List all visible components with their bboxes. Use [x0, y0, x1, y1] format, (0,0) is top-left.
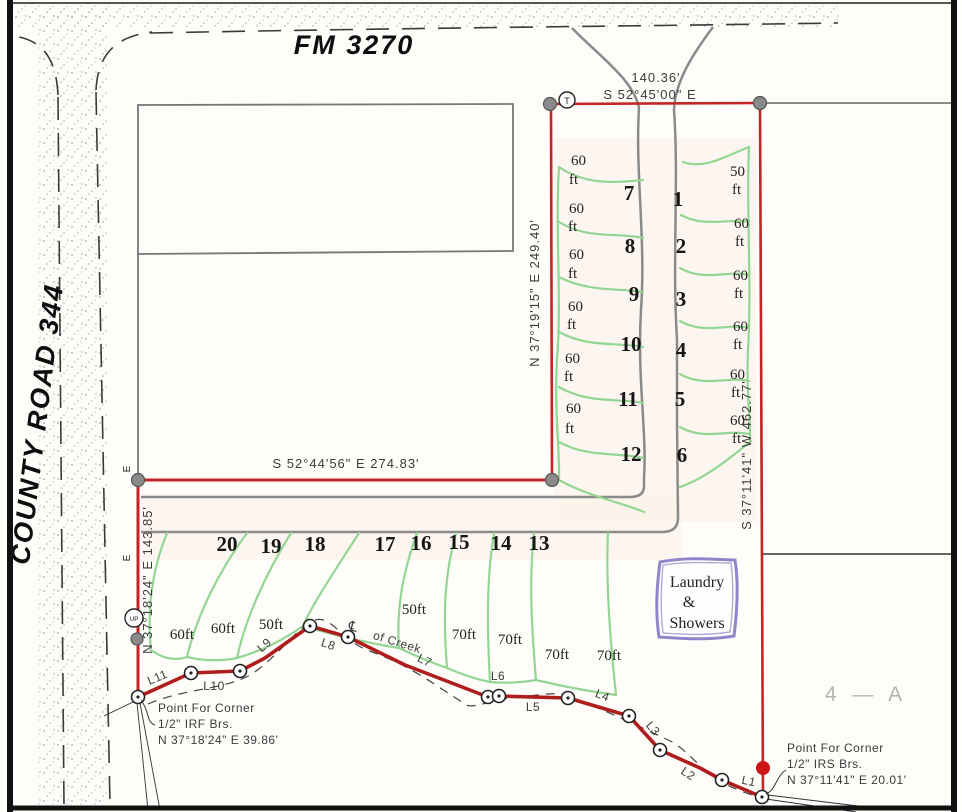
creek-vertex: [234, 665, 247, 678]
laundry-label-line3: Showers: [669, 615, 724, 632]
tint-upper-lots: [554, 138, 756, 522]
lot-width: 60: [569, 201, 584, 217]
sw-note-line2: 1/2" IRF Brs.: [158, 717, 233, 731]
lot-width: 70ft: [597, 648, 622, 664]
se-note-line2: 1/2" IRS Brs.: [787, 757, 862, 771]
corner-dot-mid-west: [132, 474, 145, 487]
creek-vertex: [562, 692, 575, 705]
lot-width: 60ft: [170, 627, 195, 643]
lot-width-unit: ft: [567, 317, 577, 333]
lower-west-line-bearing: N 37°18'24" E 143.85': [140, 506, 155, 654]
lot-number: 4: [676, 338, 687, 362]
sw-note-line1: Point For Corner: [158, 701, 255, 715]
mid-line-bearing: S 52°44'56" E 274.83': [272, 456, 419, 471]
lot15-south-line: [447, 668, 490, 682]
creek-vertex: [654, 744, 667, 757]
lot-number: 13: [529, 531, 550, 555]
lot-width-unit: ft: [733, 337, 743, 353]
creek-vertex: [493, 690, 506, 703]
north-line-distance: 140.36': [631, 70, 680, 85]
lot-number: 17: [375, 532, 396, 556]
lot-width-unit: ft: [564, 369, 574, 385]
lot-width-unit: ft: [731, 385, 741, 401]
laundry-label-line2: &: [683, 594, 696, 611]
corner-dot-north-east: [754, 97, 767, 110]
centerline-symbol: ℄: [346, 618, 360, 636]
creek-segment-label: L1: [740, 773, 757, 790]
lot-width: 50ft: [259, 617, 284, 633]
east-line-bearing: S 37°11'41" W 462.77': [739, 380, 754, 530]
lot-number: 11: [618, 387, 638, 411]
boundary-north: [551, 103, 760, 104]
lot-width: 70ft: [452, 627, 477, 643]
lot-width: 60: [733, 268, 748, 284]
adjoining-parcel-lines: [138, 103, 952, 554]
lot-width-unit: ft: [734, 286, 744, 302]
lot-width-unit: ft: [568, 266, 578, 282]
lot-number: 3: [676, 287, 687, 311]
corner-dot-mid-east: [546, 474, 559, 487]
lot-number: 14: [491, 531, 513, 555]
corner-dot-north-west: [544, 98, 557, 111]
electric-line-marker-upper: E: [122, 465, 133, 472]
se-note-line1: Point For Corner: [787, 741, 884, 755]
fm3270-pavement-stipple: [13, 4, 840, 29]
north-line-bearing: S 52°45'00" E: [603, 87, 696, 102]
creek-vertex: [304, 620, 317, 633]
survey-plat-page: T UP E E FM 3270 COUNTY ROAD 344 140.36'…: [0, 0, 962, 812]
sw-note-line3: N 37°18'24" E 39.86': [158, 733, 278, 747]
lot-width: 60: [571, 153, 586, 169]
plat-drawing: T UP E E FM 3270 COUNTY ROAD 344 140.36'…: [0, 0, 962, 812]
lot-number: 12: [621, 442, 642, 466]
lot19-south-line: [187, 657, 237, 660]
lot-number: 6: [677, 443, 688, 467]
up-marker-label: UP: [129, 616, 138, 623]
lot-width: 60: [730, 367, 745, 383]
upper-west-line-bearing: N 37°19'15" E 249.40': [527, 219, 542, 367]
lot-width: 50ft: [402, 602, 427, 618]
creek-vertex: [716, 774, 729, 787]
lot-number: 15: [449, 530, 470, 554]
boundary-east: [760, 103, 763, 797]
creek-segment-label: L8: [319, 635, 337, 653]
lot-number: 2: [676, 234, 687, 258]
lot-width-unit: ft: [732, 431, 742, 447]
lot-width: 60: [569, 247, 584, 263]
lot-number: 18: [305, 532, 326, 556]
lot-width: 60ft: [211, 621, 236, 637]
lot-width: 60: [565, 351, 580, 367]
lot-width: 70ft: [498, 632, 523, 648]
sw-tie-line-1: [137, 703, 148, 810]
corner-note-se: Point For Corner 1/2" IRS Brs. N 37°11'4…: [766, 741, 907, 794]
lot-width: 70ft: [545, 647, 570, 663]
creek-vertex: [623, 710, 636, 723]
lot-number: 20: [217, 532, 238, 556]
laundry-showers-box: Laundry & Showers: [657, 559, 737, 639]
set-point-red-dot: [756, 761, 770, 775]
laundry-label-line1: Laundry: [670, 574, 724, 591]
lot-width-unit: ft: [565, 421, 575, 437]
electric-line-marker-lower: E: [122, 554, 133, 561]
lot-number: 5: [675, 387, 686, 411]
lot-number: 8: [625, 234, 636, 258]
lot-width-unit: ft: [568, 219, 578, 235]
creek-segment-label: L6: [491, 669, 505, 683]
lot-width: 60: [734, 216, 749, 232]
lot-number: 9: [629, 282, 640, 306]
se-note-line3: N 37°11'41" E 20.01': [787, 773, 907, 787]
se-note-leader-line: [766, 770, 786, 794]
lot-number: 1: [673, 187, 684, 211]
lot-width-unit: ft: [569, 172, 579, 188]
lot-width: 60: [568, 299, 583, 315]
lot-width-unit: ft: [732, 182, 742, 198]
lot-width: 60: [733, 319, 748, 335]
lot-number: 10: [621, 332, 642, 356]
se-tie-line-2: [768, 795, 858, 806]
t-marker-label: T: [564, 96, 570, 106]
northwest-parcel-outline: [138, 104, 513, 254]
lot-number: 19: [261, 534, 282, 558]
creek-segment-label: L5: [526, 700, 540, 714]
creek-segment-label: L10: [203, 679, 225, 693]
corner-note-sw: Point For Corner 1/2" IRF Brs. N 37°18'2…: [141, 700, 278, 747]
lot-width-unit: ft: [735, 234, 745, 250]
road-name-fm3270: FM 3270: [294, 30, 415, 60]
lot20-south-line: [151, 650, 187, 659]
lot-width: 60: [730, 413, 745, 429]
creek-segment-label: L4: [593, 686, 612, 704]
creek-vertex: [756, 791, 769, 804]
lot-number: 16: [411, 531, 432, 555]
telephone-pedestal-marker: T: [559, 92, 575, 108]
lot-width: 50: [730, 164, 745, 180]
tract-label-4a: 4 — A: [825, 683, 907, 706]
lot-number: 7: [624, 181, 635, 205]
lot-width: 60: [566, 401, 581, 417]
boundary-upper-west: [551, 104, 552, 480]
sw-tie-line-2: [140, 703, 160, 810]
creek-vertex: [185, 667, 198, 680]
